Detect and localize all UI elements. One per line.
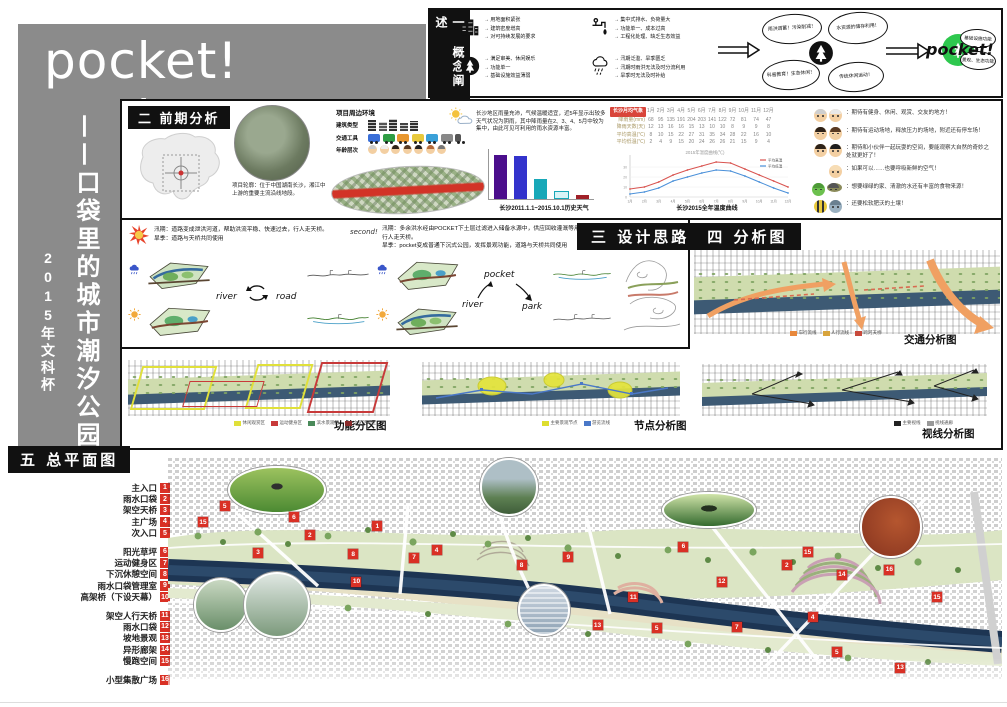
table-cell: 24 [697, 139, 707, 147]
table-cell: 35 [707, 132, 717, 140]
table-cell: 122 [717, 117, 727, 125]
legend-label: 视线通廊 [935, 420, 953, 426]
table-cell: 16 [750, 132, 762, 140]
title-block: pocket! pocket! [18, 24, 426, 100]
rain-badge-icon [128, 264, 141, 277]
legend-entry: 文化活动区 [345, 420, 376, 426]
plan-marker-7: 7 [732, 622, 742, 632]
vehicle-icon [455, 134, 461, 142]
plan-marker-9: 9 [563, 552, 573, 562]
rain-badge-icon [376, 264, 389, 277]
table-month-header: 10月 [737, 107, 750, 117]
voice-text: 如果可以……也要呼吸新鲜的空气！ [846, 165, 940, 173]
concept-bullets: 用地面积紧张建筑密度增高对可持续发展的要求 [484, 16, 535, 42]
legend-swatch [927, 421, 934, 426]
voice-row: 期待有运动场地，释放压力的场地，附近还有停车场！ [812, 127, 994, 140]
table-row: 平均高温(℃)81015222731353428221610 [610, 132, 775, 140]
table-cell: 81 [737, 117, 750, 125]
sightline-figure [702, 364, 987, 416]
table-cell: 4 [762, 139, 775, 147]
concept-bullet: 工程化处理、缺乏生态效益 [614, 33, 680, 42]
bar-阴 [514, 156, 527, 199]
plan-marker-4: 4 [808, 612, 818, 622]
sightline-caption: 视线分析图 [922, 426, 975, 441]
legend-group: 小型集散广场16 [12, 674, 170, 685]
legend-row: 架空天桥3 [12, 505, 170, 516]
plan-marker-5: 5 [832, 647, 842, 657]
voice-row: 还要松软肥沃的土壤！ [812, 200, 994, 213]
plan-sketch [144, 258, 214, 292]
table-row: 降雨天数(天)12131616151310108998 [610, 124, 775, 132]
table-row-label: 降雨天数(天) [610, 124, 646, 132]
table-month-header: 9月 [728, 107, 738, 117]
zone-outline-red-thin [182, 381, 265, 407]
concept-group: 满足审美、休闲娱乐功能单一基础设施效益薄弱 [460, 52, 582, 91]
legend-label: 主要景观节点 [551, 420, 578, 426]
table-cell: 68 [646, 117, 656, 125]
callout-photo-running-track [860, 496, 922, 558]
china-map [128, 127, 230, 211]
table-cell: 8 [762, 124, 775, 132]
legend-row: 次入口5 [12, 528, 170, 539]
legend-label: 主要视线 [903, 420, 921, 426]
plan-marker-7: 7 [409, 553, 419, 563]
plan-marker-10: 10 [351, 577, 361, 587]
legend-label: 跨河天桥 [864, 330, 882, 336]
plan-marker-15: 15 [932, 592, 942, 602]
sun-badge-icon [128, 308, 141, 321]
section-sketch [552, 306, 612, 330]
plan-marker-5: 5 [652, 623, 662, 633]
building-icon [410, 121, 418, 131]
table-cell: 13 [697, 124, 707, 132]
masterplan-legend: 主入口1雨水口袋2架空天桥3主广场4次入口5阳光草坪6运动健身区7下沉休憩空间8… [12, 482, 170, 692]
table-month-header: 1月 [646, 107, 656, 117]
legend-label: 游览流线 [592, 420, 610, 426]
sightline-overlay [702, 364, 987, 416]
section5-banner: 五 总平面图 [8, 446, 130, 473]
voice-faces [812, 183, 842, 196]
voice-faces [812, 144, 842, 157]
table-cell: 21 [728, 139, 738, 147]
vehicle-icons [368, 134, 461, 142]
bird-icon [829, 200, 842, 213]
park-tree-icon [460, 56, 480, 76]
vehicle-icon [397, 134, 409, 142]
voice-text: 想要绿绿的家、清澈的水还有丰富的食物来源！ [846, 183, 967, 191]
vehicle-icon [383, 134, 395, 142]
flow-arrows-icon [472, 280, 542, 304]
legend-swatch [855, 331, 862, 336]
concept-group: 集中式排水、负荷量大功能单一、成本过高工程化处理、缺乏生态效益 [590, 13, 712, 52]
svg-text:平均低温: 平均低温 [768, 163, 783, 168]
legend-entry: 视线通廊 [927, 420, 954, 426]
callout-photo-conifer [480, 458, 538, 516]
climate-table: 长沙月均气象1月2月3月4月5月6月7月8月9月10月11月12月降雨量(mm)… [610, 107, 775, 147]
band3: 三 设计思路 四 分析图 汛期：道路变成泄洪河道，帮助洪流平稳、快速过去，行人走… [120, 218, 1003, 450]
legend-label: 主广场 [131, 516, 157, 528]
zoning-legend: 休闲观赏区运动健身区滨水景观区文化活动区 [234, 420, 376, 426]
cycle-arrows-icon [244, 280, 270, 306]
legend-swatch [271, 421, 278, 426]
table-cell: 74 [750, 117, 762, 125]
bar-晴 [554, 191, 569, 199]
table-month-header: 7月 [707, 107, 717, 117]
table-cell: 95 [656, 117, 666, 125]
table-cell: 72 [728, 117, 738, 125]
legend-row: 慢跑空间15 [12, 655, 170, 666]
plan-marker-11: 11 [628, 592, 638, 602]
face-icons [368, 145, 446, 154]
legend-swatch [234, 421, 241, 426]
nodes-caption: 节点分析图 [634, 418, 687, 433]
nodes-figure [422, 362, 680, 416]
legend-label: 异形廊架 [123, 644, 157, 656]
bar-多云 [534, 179, 547, 199]
plan-marker-13: 13 [895, 663, 905, 673]
left-strip: ——口袋里的城市潮汐公园 2015年文科杯 [18, 100, 120, 456]
building-icon [368, 120, 376, 131]
concept-bullet: 功能单一 [484, 64, 535, 73]
plan-marker-13: 13 [593, 620, 603, 630]
legend-label: 雨水口袋 [123, 621, 157, 633]
vehicle-icon [441, 134, 453, 142]
voice-faces [812, 109, 842, 122]
table-cell: 2 [646, 139, 656, 147]
callout-photo-meadow-tree [662, 492, 756, 528]
legend-swatch [308, 421, 315, 426]
plan-marker-15: 15 [198, 517, 208, 527]
table-cell: 10 [656, 132, 666, 140]
legend-row: 雨水口袋2 [12, 493, 170, 504]
table-cell: 47 [762, 117, 775, 125]
legend-entry: 主要景观节点 [542, 420, 578, 426]
legend-label: 运动健身区 [114, 557, 157, 569]
traffic-arrows [694, 250, 1000, 334]
legend-swatch [790, 331, 797, 336]
legend-label: 人行流线 [831, 330, 849, 336]
hub-bubble: 水资源的储存利用！ [827, 10, 889, 46]
poster-competition-label: 2015年文科杯 [38, 250, 58, 394]
site-aerial-oval [331, 163, 485, 217]
building-icon [389, 119, 397, 131]
legend-row: 雨水口袋管理室9 [12, 580, 170, 591]
faucet-icon [590, 17, 610, 37]
double-arrow-icon [716, 40, 760, 60]
legend-swatch [823, 331, 830, 336]
plan-marker-6: 6 [678, 542, 688, 552]
plan-sketch [392, 258, 462, 292]
sketch-group-a: river road [128, 258, 372, 342]
section-sketch [552, 262, 612, 286]
face-icon [426, 145, 435, 154]
building-icon [400, 123, 408, 131]
temperature-line-chart: 2015年温度曲线(℃)01020301月2月3月4月5月6月7月8月9月10月… [614, 147, 796, 205]
plan-sketch [392, 304, 462, 338]
table-month-header: 8月 [717, 107, 727, 117]
legend-row: 架空人行天桥11 [12, 610, 170, 621]
table-month-header: 5月 [686, 107, 696, 117]
plan-marker-2: 2 [782, 560, 792, 570]
legend-row: 运动健身区7 [12, 557, 170, 568]
legend-label: 坡地景观 [123, 632, 157, 644]
sun-cloud-icon [448, 107, 474, 127]
table-cell: 27 [686, 132, 696, 140]
node-overlay [422, 362, 680, 416]
scheme2-tag: second! [350, 228, 378, 236]
table-cell: 16 [676, 124, 686, 132]
table-cell: 20 [686, 139, 696, 147]
table-cell: 9 [666, 139, 676, 147]
legend-row: 小型集散广场16 [12, 674, 170, 685]
climate-text: 长沙地区雨量充沛，气候温暖适宜，近5年显示出较多天气状况为阴雨，其中降雨量在2、… [476, 111, 606, 134]
section-sketch [306, 262, 370, 286]
legend-group: 主入口1雨水口袋2架空天桥3主广场4次入口5 [12, 482, 170, 539]
masterplan-drawing: 155623187489106152141612111513574513 [168, 452, 1002, 704]
plan-marker-14: 14 [837, 570, 847, 580]
man-icon [814, 144, 827, 157]
legend-entry: 滨水景观区 [308, 420, 339, 426]
concept-bullet: 汛期时雨洪无法及时分流利用 [614, 64, 685, 73]
callout-photo-lawn-tree [228, 466, 326, 514]
svg-text:10: 10 [623, 185, 627, 189]
table-cell: 34 [717, 132, 727, 140]
legend-entry: 运动健身区 [271, 420, 302, 426]
table-month-header: 11月 [750, 107, 762, 117]
elder-man-icon [829, 109, 842, 122]
section-sketch [306, 306, 370, 330]
table-month-header: 4月 [676, 107, 686, 117]
plan-marker-16: 16 [884, 565, 894, 575]
concept-bullets: 集中式排水、负荷量大功能单一、成本过高工程化处理、缺乏生态效益 [614, 16, 680, 42]
legend-swatch [584, 421, 591, 426]
cricket-icon [827, 183, 842, 192]
rain-cloud-icon [590, 56, 610, 76]
env-row: 年龄层次 [336, 145, 486, 154]
table-cell: 15 [686, 124, 696, 132]
table-cell: 10 [717, 124, 727, 132]
concept-group: 用地面积紧张建筑密度增高对可持续发展的要求 [460, 13, 582, 52]
sun-badge-icon [376, 308, 389, 321]
concept-bullet: 基础设施效益薄弱 [484, 72, 535, 81]
legend-label: 架空人行天桥 [106, 610, 157, 622]
poster-vertical-title: ——口袋里的城市潮汐公园 [69, 114, 104, 450]
pocket-logo-text: pocket! [926, 40, 994, 59]
concept-bullet: 对可持续发展的要求 [484, 33, 535, 42]
table-cell: 9 [737, 124, 750, 132]
table-cell: 31 [697, 132, 707, 140]
vehicle-icon [426, 134, 438, 142]
bar-雨 [494, 155, 507, 199]
table-cell: 26 [707, 139, 717, 147]
concept-bullet: 用地面积紧张 [484, 16, 535, 25]
elder-woman-icon [814, 109, 827, 122]
voice-text: 期待有健身、休闲、观赏、交友的地方！ [846, 109, 951, 117]
env-row: 交通工具 [336, 134, 486, 142]
plan-marker-4: 4 [432, 545, 442, 555]
plan-marker-3: 3 [253, 548, 263, 558]
table-month-header: 12月 [762, 107, 775, 117]
city-buildings-icon [460, 17, 480, 37]
bar-其他 [576, 195, 589, 199]
env-row-label: 交通工具 [336, 134, 364, 142]
legend-row: 主入口1 [12, 482, 170, 493]
table-cell: 13 [656, 124, 666, 132]
legend-row: 异形廊架14 [12, 644, 170, 655]
legend-label: 高架桥（下设天幕） [80, 591, 157, 603]
user-voices: 期待有健身、休闲、观赏、交友的地方！期待有运动场地，释放压力的场地，附近还有停车… [812, 109, 994, 218]
env-row-label: 年龄层次 [336, 146, 364, 154]
table-cell: 8 [728, 124, 738, 132]
concept-bullet: 汛期泛滥、旱季匮乏 [614, 55, 685, 64]
voice-row: 如果可以……也要呼吸新鲜的空气！ [812, 165, 994, 178]
legend-label: 下沉休憩空间 [106, 568, 157, 580]
legend-label: 文化活动区 [354, 420, 377, 426]
table-cell: 191 [676, 117, 686, 125]
legend-label: 小型集散广场 [106, 674, 157, 686]
traffic-legend: 车行流线人行流线跨河天桥 [790, 330, 882, 336]
analysis-panel: 二 前期分析 项目轮廓：位于中国湖南长沙，湘江中上游的重要主流沿线地段。 项目周… [120, 99, 1003, 220]
face-icon [414, 145, 423, 154]
location-text: 项目轮廓：位于中国湖南长沙，湘江中上游的重要主流沿线地段。 [232, 183, 328, 198]
svg-text:30: 30 [623, 165, 627, 169]
voice-row: 想要绿绿的家、清澈的水还有丰富的食物来源！ [812, 183, 994, 196]
table-row: 降雨量(mm)689513519120420314112272817447 [610, 117, 775, 125]
scheme2-text: 汛期：多余洪水经由POCKET下土层过滤进入储备水源中，供应回收灌溉等用途，行人… [382, 225, 594, 251]
legend-label: 主入口 [131, 482, 157, 494]
legend-row: 坡地景观13 [12, 633, 170, 644]
legend-entry: 人行流线 [823, 330, 850, 336]
legend-label: 车行流线 [799, 330, 817, 336]
traffic-analysis-figure [694, 250, 1000, 334]
plan-marker-2: 2 [305, 530, 315, 540]
table-cell: 10 [762, 132, 775, 140]
legend-label: 雨水口袋 [123, 493, 157, 505]
legend-label: 滨水景观区 [317, 420, 340, 426]
table-month-header: 6月 [697, 107, 707, 117]
table-cell: 15 [666, 132, 676, 140]
legend-entry: 游览流线 [584, 420, 611, 426]
building-icon [379, 122, 387, 131]
concept-bullet: 功能单一、成本过高 [614, 25, 680, 34]
table-month-header: 3月 [666, 107, 676, 117]
concept-hub: 雨洪调蓄！污染削减！水资源的储存利用！科普教育！生态休闲！传统休闲运动！ [762, 12, 884, 92]
table-cell: 135 [666, 117, 676, 125]
legend-label: 慢跑空间 [123, 655, 157, 667]
building-icons [368, 119, 418, 131]
bar-chart-caption: 长沙2011.1.1~2015.10.1历史天气 [474, 203, 614, 212]
table-cell: 9 [750, 139, 762, 147]
voice-row: 期待和小伙伴一起玩耍的空间，要能观察大自然的奇妙之处就更好了！ [812, 144, 994, 161]
plan-marker-15: 15 [803, 547, 813, 557]
nodes-legend: 主要景观节点游览流线 [542, 420, 610, 426]
legend-label: 休闲观赏区 [243, 420, 266, 426]
table-cell: 4 [656, 139, 666, 147]
legend-label: 架空天桥 [123, 504, 157, 516]
sightline-legend: 主要视线视线通廊 [894, 420, 953, 426]
legend-swatch [894, 421, 901, 426]
face-icon [437, 145, 446, 154]
svg-text:12月: 12月 [785, 200, 792, 204]
double-arrow-icon [884, 42, 930, 60]
legend-label: 运动健身区 [280, 420, 303, 426]
zone-outline-red [307, 362, 389, 413]
burst-icon [128, 224, 150, 246]
callout-photo-park-2 [244, 572, 310, 638]
plan-sketch [144, 304, 214, 338]
concept-panel: 一 概念阐述 用地面积紧张建筑密度增高对可持续发展的要求集中式排水、负荷量大功能… [428, 8, 1003, 98]
callout-photo-park-1 [194, 578, 248, 632]
legend-entry: 车行流线 [790, 330, 817, 336]
park-hub-icon [808, 40, 834, 66]
table-cell: 16 [666, 124, 676, 132]
svg-text:20: 20 [623, 175, 627, 179]
concept-bullet: 建筑密度增高 [484, 25, 535, 34]
voice-faces [812, 165, 842, 178]
legend-row: 阳光草坪6 [12, 546, 170, 557]
table-cell: 15 [676, 139, 686, 147]
satellite-photo [234, 105, 310, 181]
legend-row: 下沉休憩空间8 [12, 569, 170, 580]
hub-bubble: 传统休闲运动！ [827, 60, 885, 94]
section2-banner: 二 前期分析 [128, 106, 230, 129]
line-chart-caption: 长沙2015全年温度曲线 [632, 203, 782, 212]
cycle-label-road: road [276, 292, 296, 302]
table-cell: 22 [737, 132, 750, 140]
table-cell: 28 [728, 132, 738, 140]
legend-row: 雨水口袋12 [12, 621, 170, 632]
env-row-label: 建筑类型 [336, 121, 364, 129]
zoning-figure [128, 360, 390, 416]
table-cell: 15 [737, 139, 750, 147]
face-icon [368, 145, 377, 154]
table-cell: 9 [750, 124, 762, 132]
svg-text:2015年温度曲线(℃): 2015年温度曲线(℃) [685, 149, 725, 156]
woman-icon [829, 127, 842, 140]
voice-faces [812, 200, 842, 213]
callout-photo-building [518, 584, 570, 636]
table-title-chip: 长沙月均气象 [610, 107, 646, 117]
plan-marker-8: 8 [517, 560, 527, 570]
design-poster: pocket! pocket! ——口袋里的城市潮汐公园 2015年文科杯 一 … [0, 0, 1007, 707]
legend-label: 雨水口袋管理室 [97, 580, 157, 592]
legend-swatch [345, 421, 352, 426]
face-icon [380, 145, 389, 154]
concept-bullet: 旱季时无法及时补给 [614, 72, 685, 81]
girl-icon [829, 144, 842, 157]
concept-sketch-collage [620, 252, 684, 342]
table-row: 平均低温(℃)2491520242626211594 [610, 139, 775, 147]
legend-swatch [542, 421, 549, 426]
table-row-label: 平均低温(℃) [610, 139, 646, 147]
table-row-label: 平均高温(℃) [610, 132, 646, 140]
section34-banner: 三 设计思路 四 分析图 [577, 223, 801, 250]
concept-bullet: 集中式排水、负荷量大 [614, 16, 680, 25]
table-row-label: 降雨量(mm) [610, 117, 646, 125]
face-icon [391, 145, 400, 154]
plan-marker-5: 5 [220, 501, 230, 511]
table-cell: 12 [646, 124, 656, 132]
plan-marker-6: 6 [289, 512, 299, 522]
footer-line [0, 702, 1007, 703]
voice-faces [812, 127, 842, 140]
scheme1-text: 汛期：道路变成泄洪河道，帮助洪流平稳、快速过去，行人走天桥。 旱季：道路与天桥共… [154, 226, 342, 243]
cycle-label-river: river [216, 292, 237, 302]
vehicle-icon [412, 134, 424, 142]
voice-text: 期待有运动场地，释放压力的场地，附近还有停车场！ [846, 127, 984, 135]
table-cell: 204 [686, 117, 696, 125]
concept-groups: 用地面积紧张建筑密度增高对可持续发展的要求集中式排水、负荷量大功能单一、成本过高… [460, 13, 712, 91]
